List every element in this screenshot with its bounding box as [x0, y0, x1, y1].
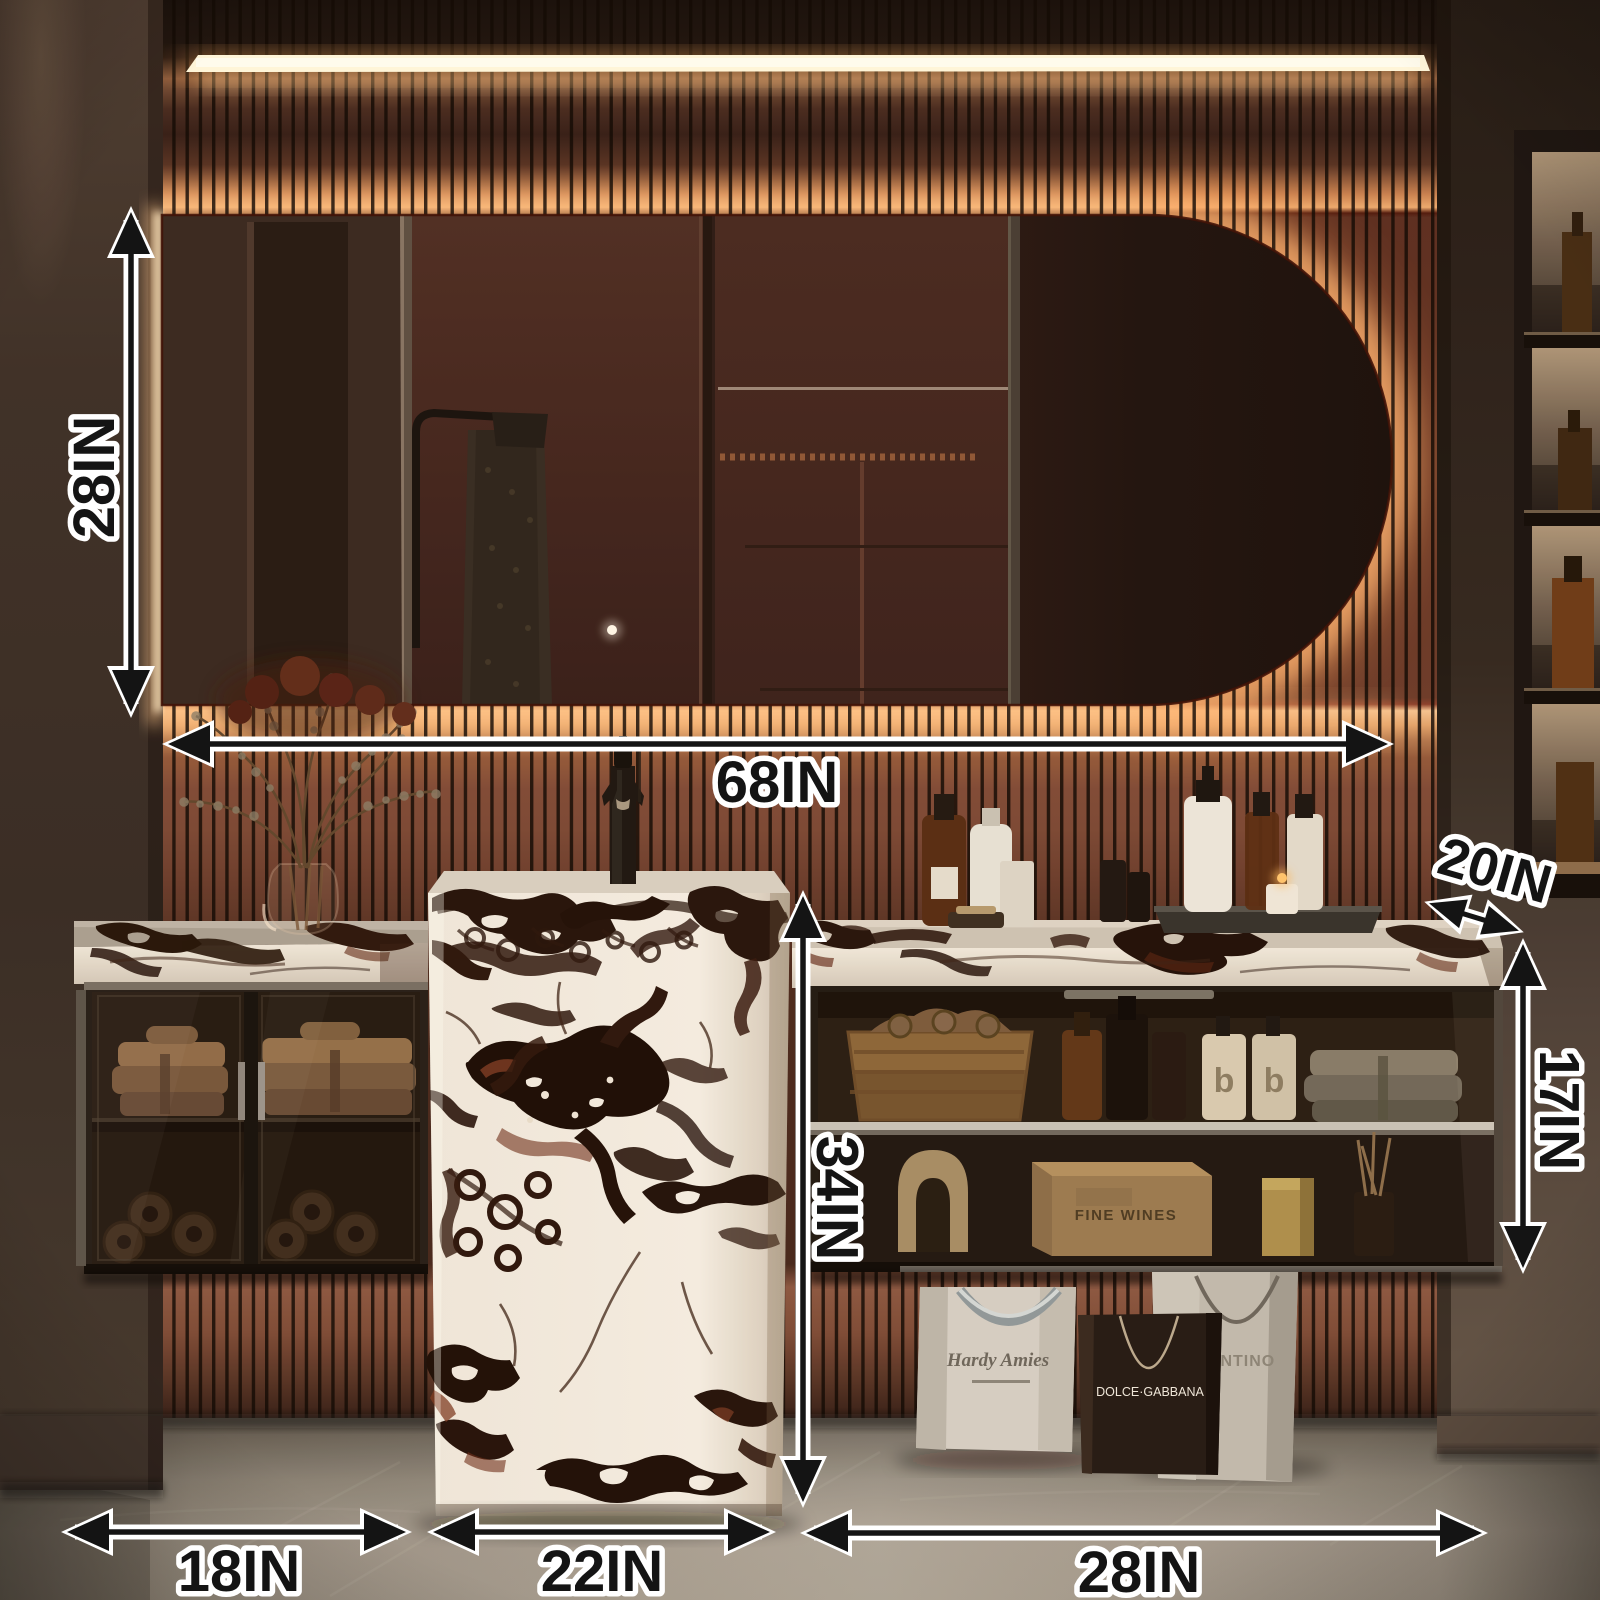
svg-text:34IN: 34IN [804, 1136, 870, 1261]
svg-text:28IN: 28IN [62, 416, 127, 539]
svg-text:22IN: 22IN [541, 1539, 664, 1600]
svg-text:28IN: 28IN [1078, 1540, 1201, 1600]
svg-text:18IN: 18IN [178, 1539, 301, 1600]
svg-text:68IN: 68IN [716, 750, 839, 815]
svg-text:17IN: 17IN [1527, 1050, 1591, 1170]
